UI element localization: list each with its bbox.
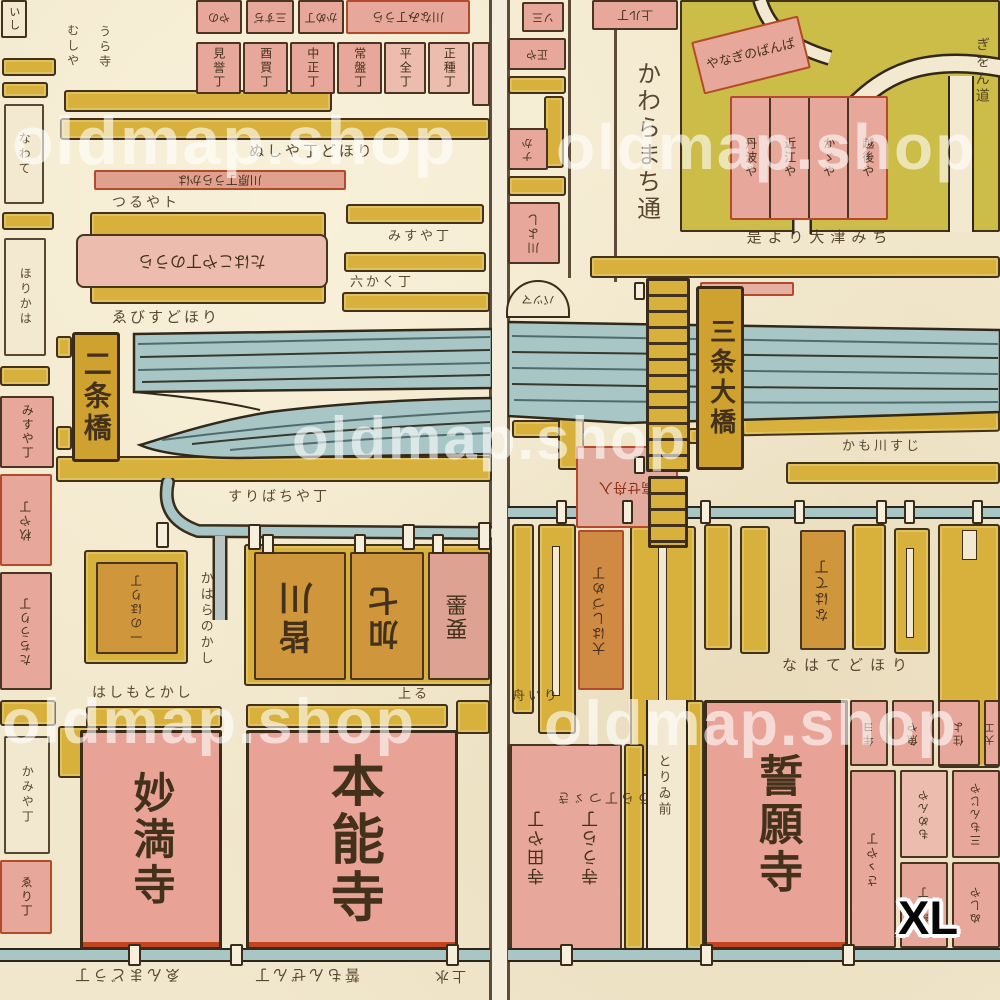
stall-slit [906,548,914,638]
town-cell: さゝや丁 [850,770,896,948]
town-cell: 酉買丁 [243,42,288,94]
street-note: かも川すじ [842,440,922,454]
town-cell: 正種丁 [428,42,470,94]
canal-gate-post [700,500,711,524]
town-cell: 寺うら丁 [566,746,620,948]
town-block: たちうり丁 [0,572,52,690]
street-bar [344,252,486,272]
bridge-post [56,336,72,358]
town-cell: 川よし [508,202,560,264]
street-note: なはてどほり [698,658,998,674]
street-note: 六かく丁 [350,276,414,290]
town-cell: 正や [508,38,566,70]
canal-gate-post [700,944,713,966]
street-bar [342,292,490,312]
bottom-note: 上水 [432,968,466,983]
canal-gate-post [248,524,261,550]
watermark-center: oldmap.shop [292,404,687,473]
town-cell: 見誉丁 [196,42,241,94]
street-bar [2,82,48,98]
canal-gate-post [622,500,633,524]
stall-slit [552,546,560,696]
road-note: 是より大津みち [640,230,1000,246]
street-note: みすや丁 [388,230,452,244]
boat-shape: バツマ [506,280,570,318]
canal-strip [0,948,490,962]
town-cell: 常盤丁 [337,42,382,94]
bottom-note: 誓もんぜん丁 [252,966,360,982]
street-bar [0,366,50,386]
watermark-bottom-left: oldmap.shop [2,686,416,758]
street-note: すりばちや丁 [228,490,330,505]
town-cell: 三すぢ [246,0,294,34]
street-bar [508,76,566,94]
corner-note: ぎをん道 [974,26,989,116]
watermark-top-left: oldmap.shop [12,102,457,180]
watermark-top-right: oldmap.shop [556,110,976,184]
canal-gate-post [842,944,855,966]
size-badge-xl: XL [898,890,958,945]
street-bar [786,462,1000,484]
street-bar [2,212,54,230]
stall-column [852,524,886,650]
canal-gate-post [904,500,915,524]
stall-slit [962,530,977,560]
canal-gate-post [402,524,415,550]
street-note: つるやト [112,196,180,211]
street-note: むしや [66,6,79,86]
hanger-post [354,534,366,554]
merchant-block: 皆川 [254,552,346,680]
canal-gate-post [446,944,459,966]
canal-gate-post [556,500,567,524]
stall-label-block: なはて丁 [800,530,846,650]
street-bar [2,58,56,76]
town-corner-block: 川なみ丁うら [346,0,470,34]
bridge-label-nijobashi: 二条橋 [72,332,120,462]
town-cell: 寺田や丁 [510,746,566,948]
canal-bridge-ladder [648,476,688,548]
canal-strip [508,948,1000,962]
canal-gate-post [128,944,141,966]
stall-column [512,524,534,714]
canal-gate-post [794,500,805,524]
pink-label-block: たはこや丁のうら [76,234,328,288]
street-bar [346,204,484,224]
edge-cell: ほりかは [4,238,46,356]
edge-cell: いし [1,0,27,38]
town-block: 杦や丁 [0,474,52,566]
town-tag [472,42,490,106]
canal-gate-post [230,944,243,966]
temple-honnoji: 本能寺 [246,730,458,950]
canal-street-label: かはらのかし [198,556,212,682]
canal-gate-post [972,500,983,524]
street-bar [624,744,644,950]
stall-column [740,526,770,654]
town-cell: ナか [508,128,548,170]
old-map-scan: { "watermark": { "text": "oldmap.shop" }… [0,0,1000,1000]
town-block: みすや丁 [0,396,54,468]
town-cell: もめんや [900,770,948,858]
canal-gate-post [156,522,169,548]
canal-gate-post [560,944,573,966]
town-cell: 上ル丁 [592,0,678,30]
town-cell: ぬしや [952,862,1000,948]
merchant-block: 加七 [350,552,424,680]
town-cell: 三もんじや [952,770,1000,858]
bridge-label-sanjo-ohashi: 三条大橋 [696,286,744,470]
hanger-post [432,534,444,554]
orange-label-block: 一のほり丁 [96,562,178,654]
town-cell: 中正丁 [290,42,335,94]
town-cell: ソ三 [522,2,564,32]
street-bar [456,700,490,734]
town-cell: やの [196,0,242,34]
town-cell: 大工 [984,700,1000,766]
teramachi-block: 寺田や丁 寺うら丁 [508,744,622,950]
canal-gate-post [876,500,887,524]
canal-gate-post [478,522,491,550]
stall-column [704,524,732,650]
merchant-block: 要墨 [428,552,490,680]
town-cell: かめ丁 [298,0,344,34]
bridge-post [634,282,645,300]
temple-myomanji: 妙満寺 [80,730,222,950]
town-block: ゑり丁 [0,860,52,934]
street-note: うら寺 [98,10,111,84]
street-note: ゑびすどほり [112,310,220,326]
bottom-note: ゑんまどう丁 [72,966,180,982]
stall-label-block: 大はしづめ丁 [578,530,624,690]
watermark-bottom-right: oldmap.shop [544,688,958,760]
town-cell: 平全丁 [384,42,426,94]
bridge-post [56,426,72,450]
hanger-post [262,534,274,554]
